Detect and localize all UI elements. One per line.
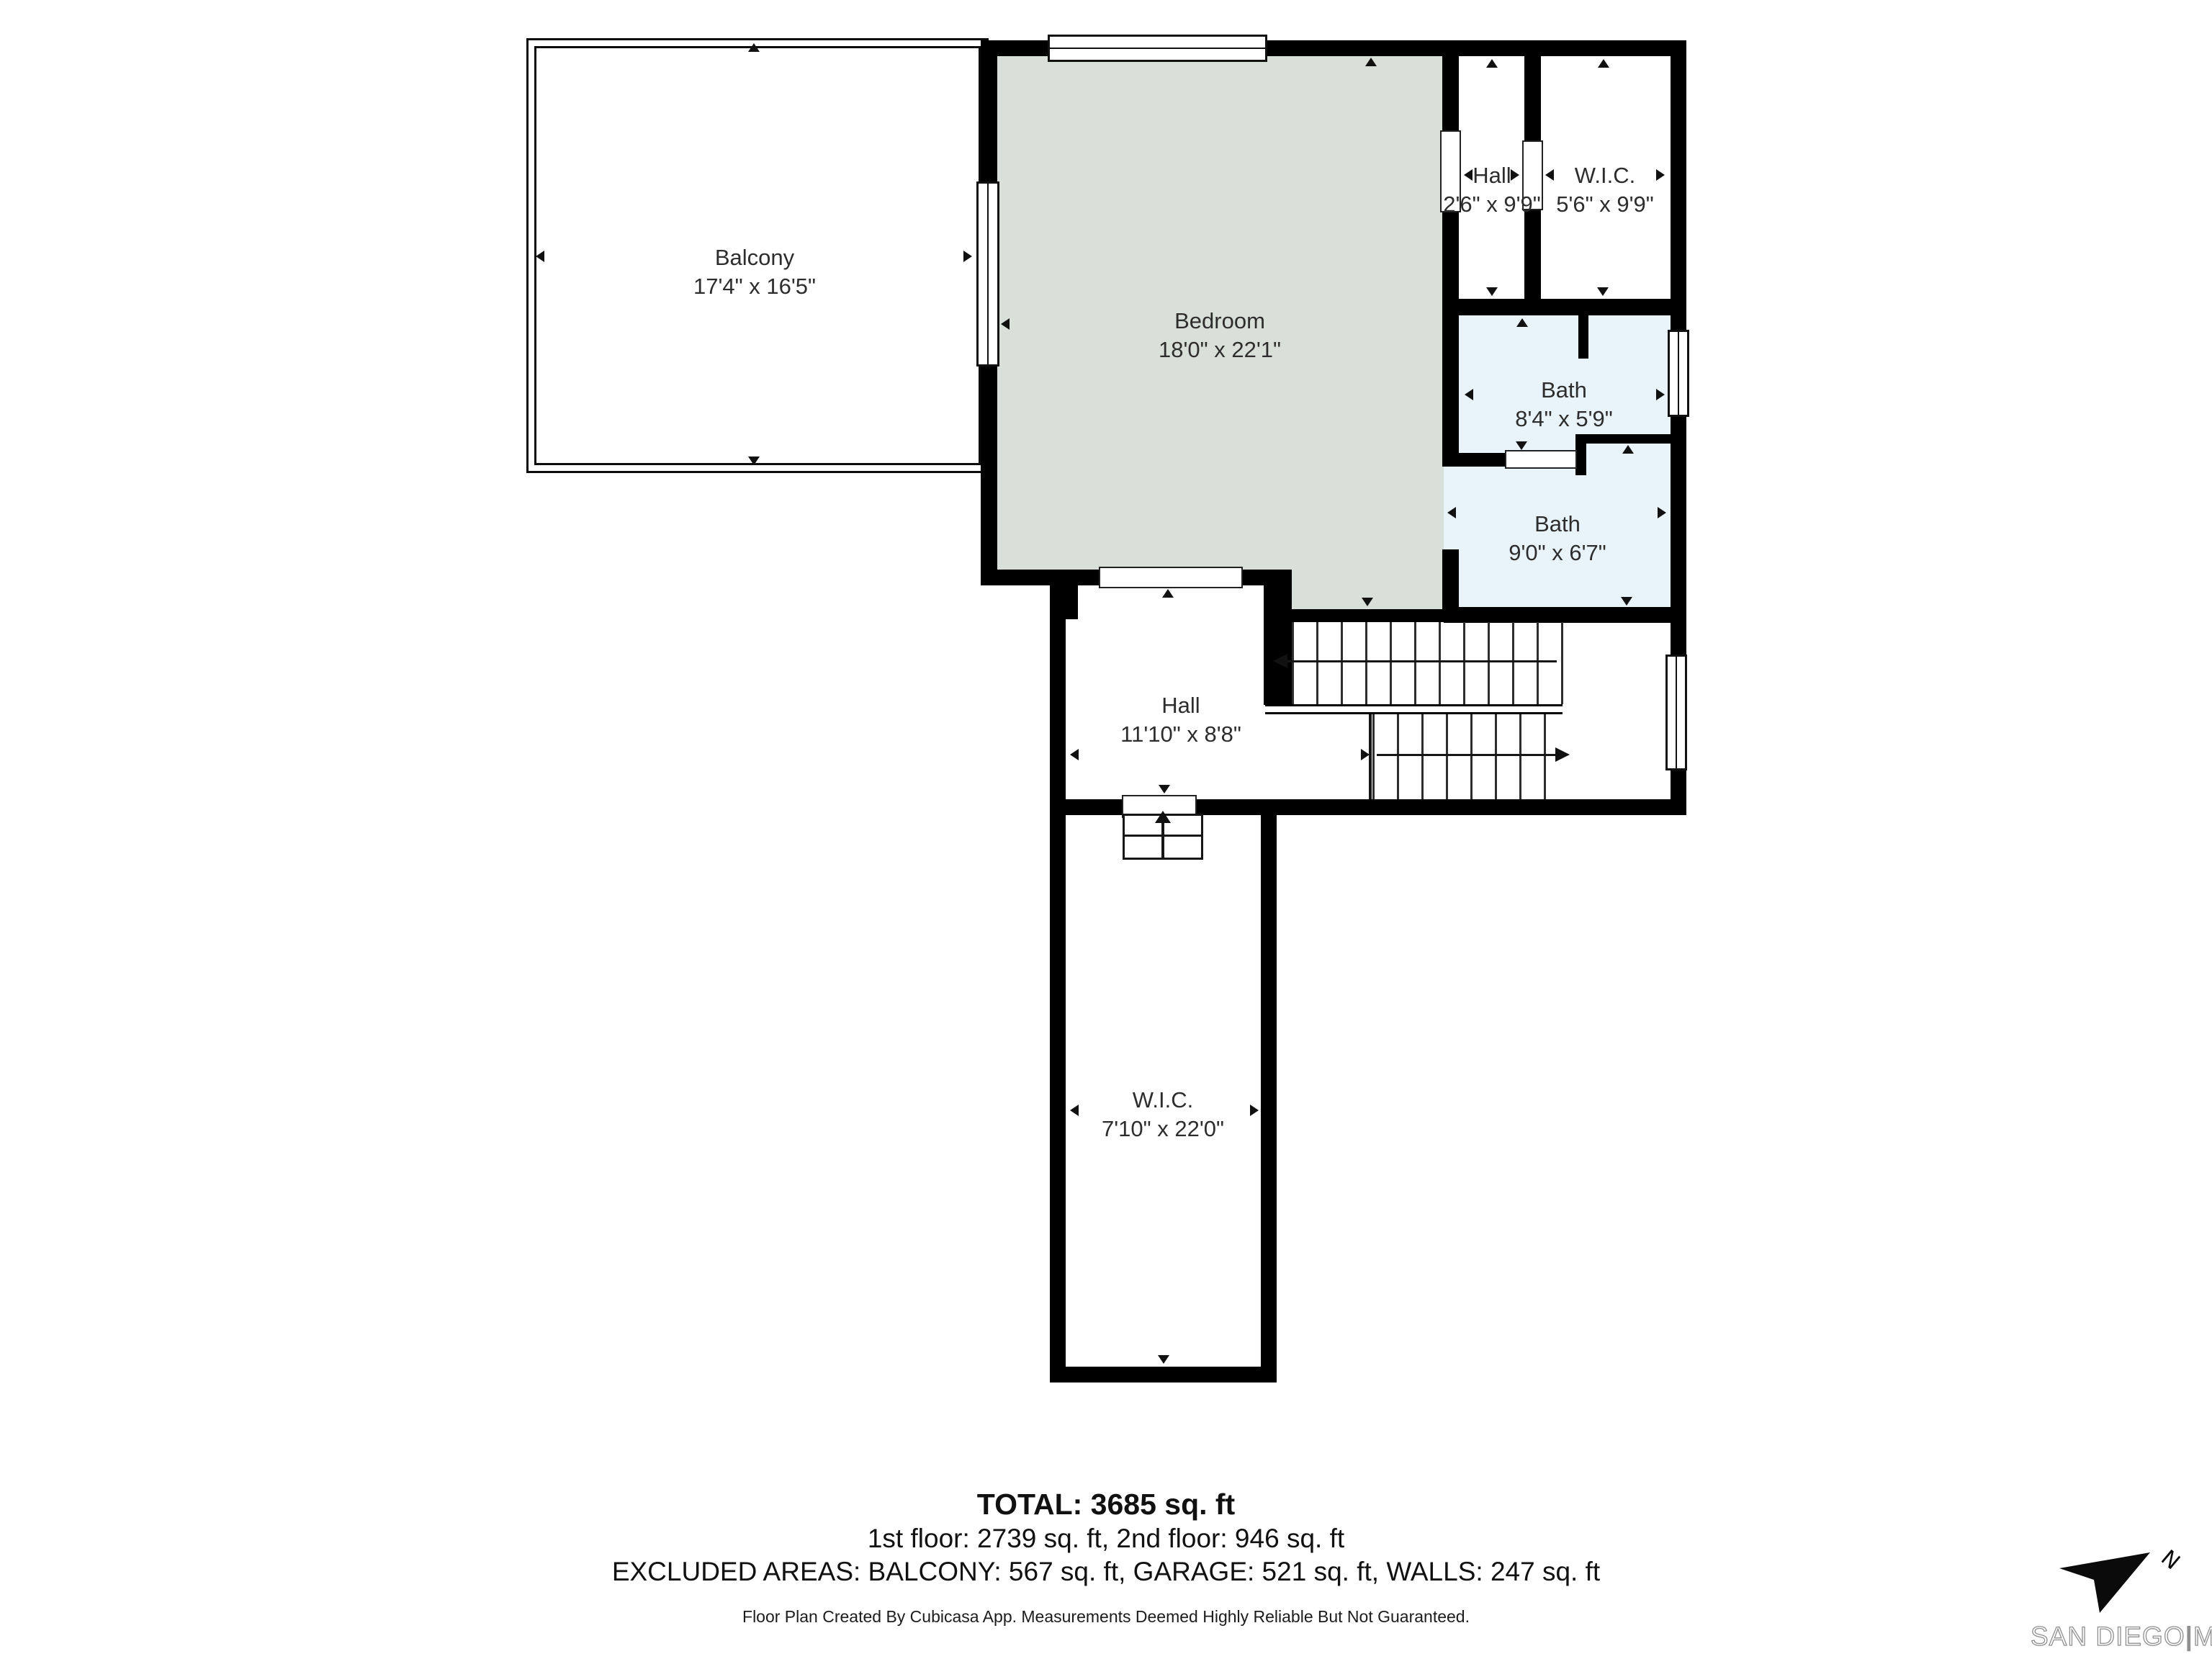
wall	[981, 56, 997, 181]
bath2-dim-arrow-up	[1622, 445, 1634, 454]
room-label-wic-upper: W.I.C. 5'6" x 9'9"	[1556, 161, 1654, 219]
bedroom-dim-arrow-down	[1362, 598, 1373, 606]
hall-upper-dim-arrow-up	[1486, 59, 1498, 68]
wall	[1578, 315, 1588, 359]
balcony-dim-arrow-down	[748, 457, 760, 465]
brand-divider: |	[2185, 1622, 2193, 1651]
wall	[981, 367, 997, 585]
room-name: W.I.C.	[1556, 161, 1654, 190]
area-summary: TOTAL: 3685 sq. ft 1st floor: 2739 sq. f…	[0, 1486, 2212, 1588]
wall	[1442, 211, 1459, 463]
balcony-dim-arrow-up	[748, 43, 760, 52]
wall	[1066, 799, 1123, 815]
bath-to-bath-door	[1505, 450, 1577, 469]
compass-north-icon: N	[2058, 1547, 2180, 1619]
room-label-balcony: Balcony 17'4" x 16'5"	[693, 243, 816, 301]
room-name: Balcony	[693, 243, 816, 272]
wic-upper-dim-arrow-up	[1598, 59, 1609, 68]
balcony-dim-arrow-right	[963, 251, 972, 262]
floor-areas-text: 1st floor: 2739 sq. ft, 2nd floor: 946 s…	[0, 1522, 2212, 1555]
total-area-text: TOTAL: 3685 sq. ft	[0, 1486, 2212, 1522]
room-name: Hall	[1120, 691, 1241, 720]
wall	[1575, 434, 1586, 475]
compass-letter: N	[2156, 1547, 2180, 1575]
stairs-up-arrow-line	[1287, 660, 1557, 662]
room-name: W.I.C.	[1102, 1086, 1224, 1115]
wall	[1195, 799, 1686, 815]
room-name: Hall	[1443, 161, 1541, 190]
stairs-up-arrowhead	[1273, 654, 1287, 668]
room-dims: 9'0" x 6'7"	[1509, 539, 1606, 567]
wall	[1442, 56, 1459, 132]
room-dims: 8'4" x 5'9"	[1515, 405, 1613, 433]
bedroom-top-window	[1048, 35, 1267, 62]
room-label-hall-upper: Hall 2'6" x 9'9"	[1443, 161, 1541, 219]
hall-dim-arrow-left	[1070, 749, 1079, 760]
wall	[1264, 585, 1292, 705]
bath1-dim-arrow-right	[1656, 389, 1665, 400]
mls-brand-text: SAN DIEGO|MLS	[2031, 1622, 2212, 1652]
bedroom-dim-arrow-left	[1001, 318, 1010, 330]
wall	[1050, 1367, 1277, 1382]
room-label-bath-1: Bath 8'4" x 5'9"	[1515, 376, 1613, 433]
wall	[1292, 609, 1444, 622]
bath2-dim-arrow-right	[1658, 507, 1666, 518]
hall-upper-dim-arrow-down	[1486, 287, 1498, 296]
balcony-dim-arrow-left	[536, 251, 544, 262]
room-dims: 7'10" x 22'0"	[1102, 1115, 1224, 1143]
wic-upper-dim-arrow-left	[1545, 169, 1554, 181]
stairs-down-arrow-line	[1377, 754, 1557, 756]
bath1-dim-arrow-up	[1516, 318, 1528, 327]
wall	[1241, 570, 1292, 585]
room-name: Bath	[1509, 510, 1606, 539]
brand-mls: MLS	[2193, 1622, 2212, 1651]
wic-upper-dim-arrow-down	[1597, 287, 1609, 296]
balcony-slider-window	[976, 181, 999, 367]
wall	[1459, 299, 1671, 315]
disclaimer-text: Floor Plan Created By Cubicasa App. Meas…	[0, 1607, 2212, 1627]
room-dims: 5'6" x 9'9"	[1556, 190, 1654, 219]
sandiego-mls-logo: N SAN DIEGO|MLS	[2031, 1541, 2212, 1656]
room-dims: 11'10" x 8'8"	[1120, 720, 1241, 749]
room-dims: 2'6" x 9'9"	[1443, 190, 1541, 219]
stairs-lower-flight	[1372, 714, 1563, 799]
bath2-dim-arrow-left	[1447, 507, 1456, 518]
wic-entry-arrow-stem	[1161, 823, 1164, 859]
room-label-bath-2: Bath 9'0" x 6'7"	[1509, 510, 1606, 567]
stairs-down-arrowhead	[1555, 747, 1570, 762]
stair-landing-window	[1665, 655, 1687, 770]
hall-dim-arrow-down	[1159, 785, 1170, 793]
wic-upper-dim-arrow-right	[1656, 169, 1665, 181]
wall	[1524, 56, 1541, 142]
room-label-hall: Hall 11'10" x 8'8"	[1120, 691, 1241, 749]
brand-sandiego: SAN DIEGO	[2031, 1622, 2185, 1651]
stairs-upper-flight	[1292, 622, 1563, 704]
room-dims: 17'4" x 16'5"	[693, 272, 816, 301]
wall	[1261, 815, 1277, 1382]
wic-dim-arrow-right	[1250, 1105, 1259, 1116]
hall-dim-arrow-up	[1162, 589, 1174, 598]
wic-entry-arrowhead	[1155, 811, 1171, 823]
room-dims: 18'0" x 22'1"	[1159, 336, 1281, 364]
stairs-center-divider	[1265, 704, 1563, 714]
room-name: Bedroom	[1159, 307, 1281, 336]
bedroom-to-hall-door	[1099, 567, 1243, 588]
bath-right-window	[1668, 330, 1689, 417]
wall	[1671, 56, 1686, 331]
floor-plan-page: Balcony 17'4" x 16'5" Bedroom 18'0" x 22…	[0, 0, 2212, 1659]
room-label-wic: W.I.C. 7'10" x 22'0"	[1102, 1086, 1224, 1143]
wic-dim-arrow-left	[1070, 1105, 1079, 1116]
wic-dim-arrow-down	[1158, 1355, 1169, 1364]
wall	[1442, 453, 1506, 467]
wall	[1586, 434, 1671, 444]
wall	[1444, 607, 1686, 623]
wall	[981, 570, 1102, 585]
bath1-dim-arrow-left	[1465, 389, 1473, 400]
room-label-bedroom: Bedroom 18'0" x 22'1"	[1159, 307, 1281, 364]
excluded-areas-text: EXCLUDED AREAS: BALCONY: 567 sq. ft, GAR…	[0, 1555, 2212, 1588]
wall	[1524, 209, 1541, 299]
bedroom-dim-arrow-up	[1365, 58, 1377, 66]
wall	[1050, 585, 1066, 1382]
stairs-down-start-marker	[1361, 749, 1370, 760]
room-name: Bath	[1515, 376, 1613, 405]
bath2-dim-arrow-down	[1621, 597, 1632, 606]
bath1-dim-arrow-down	[1516, 441, 1527, 450]
